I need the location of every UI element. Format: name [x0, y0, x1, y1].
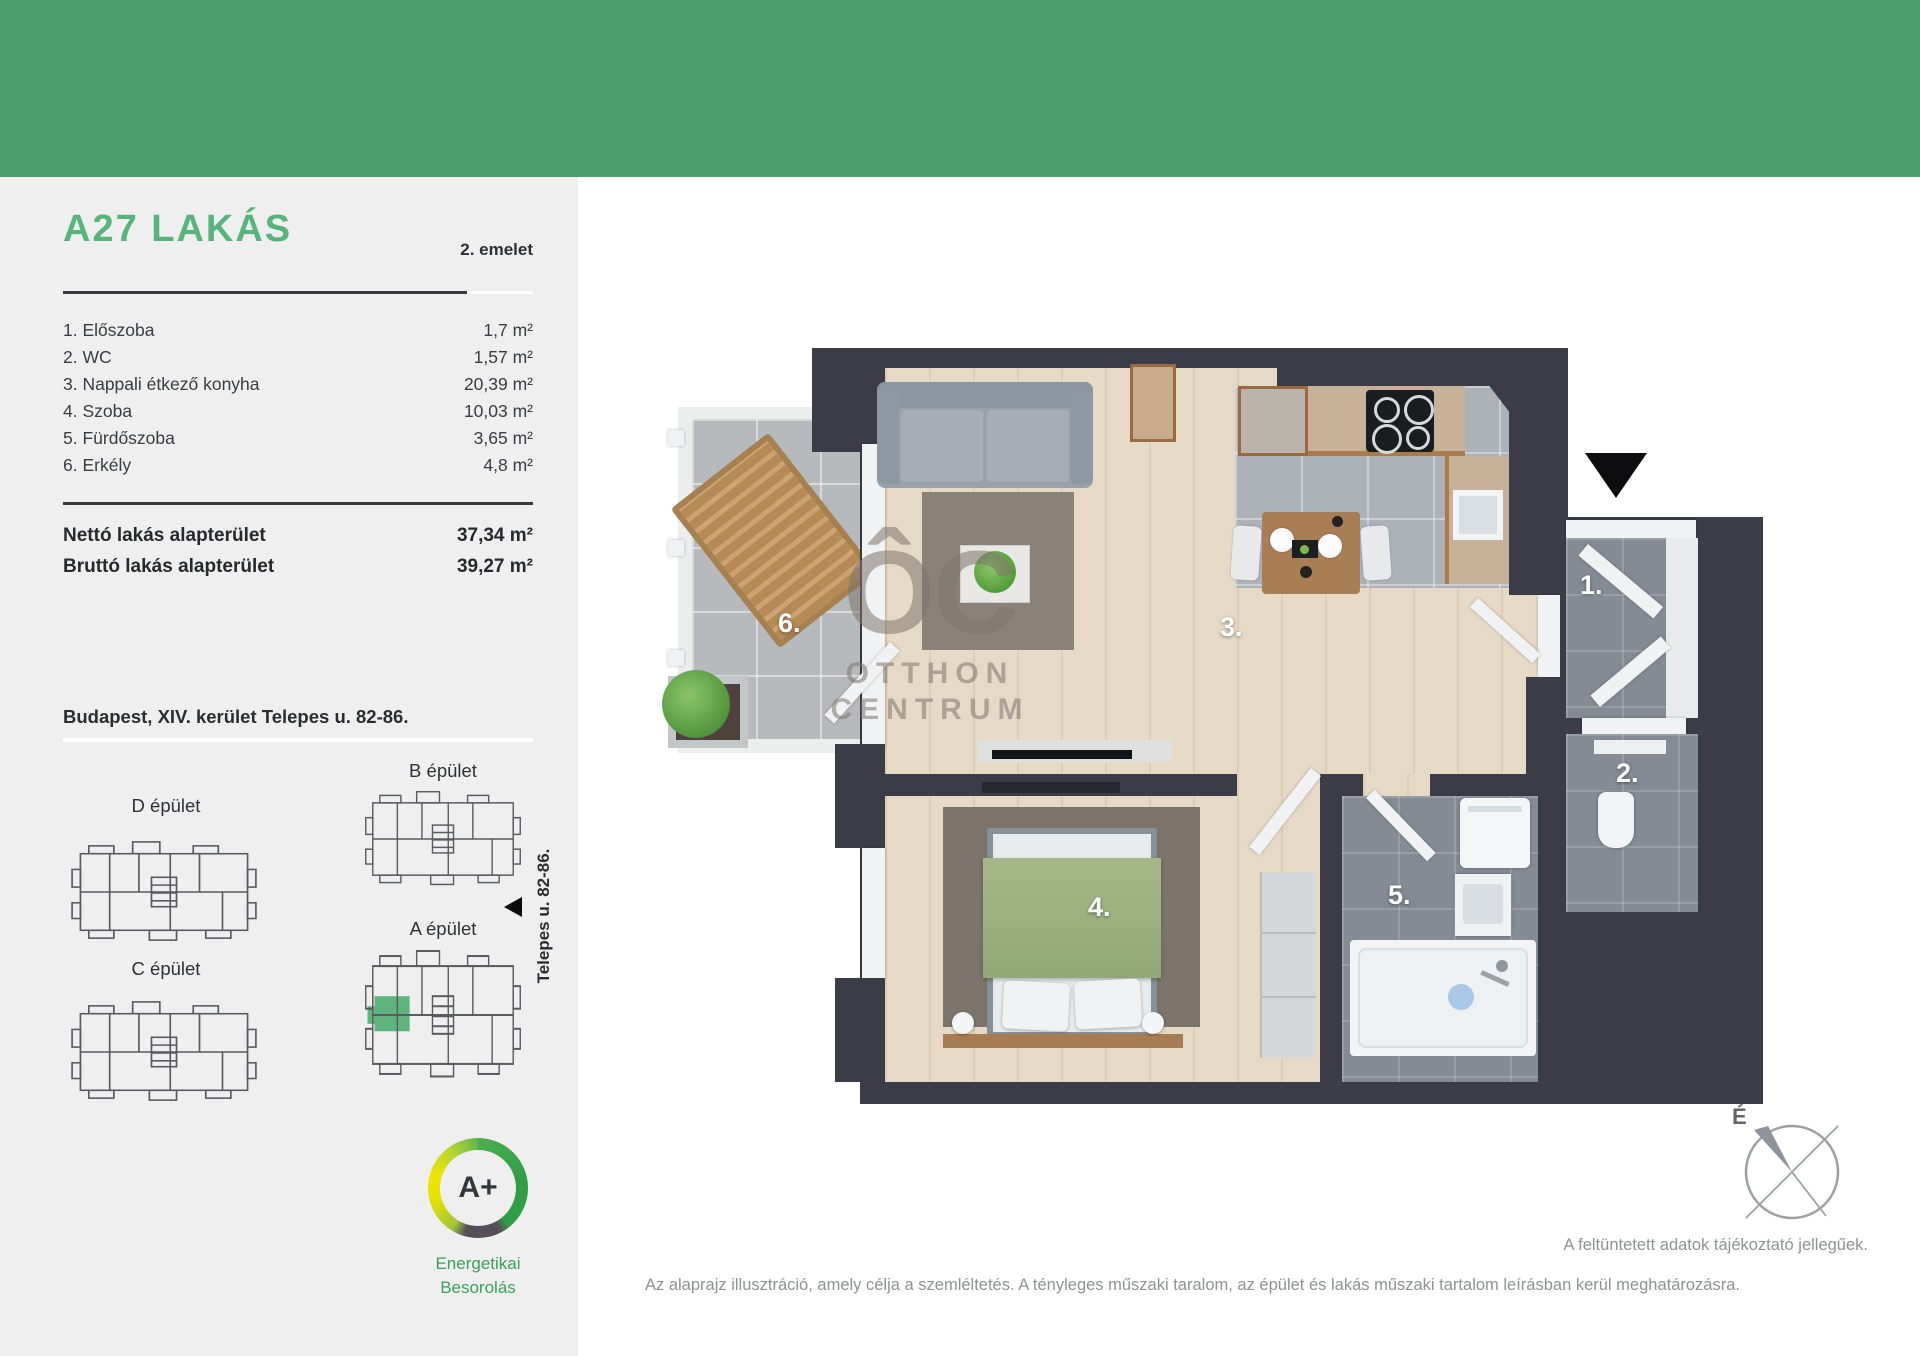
dining-chair [1360, 525, 1392, 581]
cup [1300, 566, 1312, 578]
table-plant [974, 551, 1016, 593]
serving-tray [1292, 540, 1318, 558]
room-number-wc: 2. [1616, 758, 1639, 789]
building-plan-a [364, 946, 522, 1084]
compass-needle [1754, 1126, 1792, 1172]
bed-blanket [983, 858, 1161, 978]
headboard-shelf [943, 1034, 1183, 1048]
room-label: 6. Erkély [63, 452, 131, 479]
compass-north-label: É [1732, 1104, 1747, 1129]
toilet [1598, 792, 1634, 848]
plant-bush [662, 670, 730, 738]
total-label: Nettó lakás alapterület [63, 520, 266, 551]
washing-machine [1460, 798, 1530, 868]
room-number-hall: 1. [1580, 570, 1603, 601]
disclaimer-long: Az alaprajz illusztráció, amely célja a … [645, 1276, 1885, 1295]
kitchen-fridge [1238, 386, 1308, 456]
sink-basin [1463, 884, 1503, 924]
sofa-cushion [901, 410, 983, 482]
compass: É [1722, 1096, 1858, 1232]
wc-threshold [1582, 718, 1686, 734]
room-area: 20,39 m² [464, 371, 533, 398]
wc-cistern [1594, 740, 1666, 754]
building-label-a: A épület [364, 918, 522, 940]
pillow [1074, 978, 1142, 1029]
sofa [877, 382, 1093, 488]
room-area: 3,65 m² [474, 425, 533, 452]
room-label: 3. Nappali étkező konyha [63, 371, 260, 398]
shower-head [1496, 960, 1508, 972]
total-label: Bruttó lakás alapterület [63, 551, 274, 582]
highlighted-unit [375, 996, 410, 1031]
floor-label: 2. emelet [300, 240, 533, 260]
cooktop [1366, 390, 1434, 452]
bedside-lamp [1142, 1012, 1164, 1034]
living-window [862, 444, 885, 750]
disclaimer-short: A feltüntetett adatok tájékoztató jelleg… [1268, 1236, 1868, 1255]
room-area: 10,03 m² [464, 398, 533, 425]
title-divider [63, 291, 467, 294]
room-list: 1. Előszoba 1,7 m² 2. WC 1,57 m² 3. Napp… [63, 317, 533, 479]
header-band [0, 0, 1920, 177]
address-divider [63, 738, 533, 742]
bathroom-sink [1455, 874, 1511, 936]
total-row: Nettó lakás alapterület 37,34 m² [63, 520, 533, 551]
kitchen-sink [1453, 490, 1503, 540]
sink-basin [1459, 496, 1497, 534]
room-area: 1,7 m² [483, 317, 533, 344]
burner [1404, 395, 1434, 425]
cup [1332, 516, 1343, 527]
washer-panel [1468, 806, 1522, 812]
burner [1406, 426, 1430, 450]
entrance-arrow [1585, 453, 1647, 498]
title-divider-accent [467, 291, 533, 294]
garnish [1300, 545, 1309, 554]
plate [1318, 534, 1342, 558]
pillow [1002, 980, 1070, 1031]
room-label: 5. Fürdőszoba [63, 425, 175, 452]
tub-drain [1448, 984, 1474, 1010]
wardrobe-line [1262, 932, 1316, 934]
wall-pier-midleft [835, 744, 885, 848]
entry-threshold [1566, 520, 1696, 538]
bedside-lamp [952, 1012, 974, 1034]
tv [992, 750, 1132, 759]
totals-divider [63, 502, 533, 505]
wardrobe-line [1262, 996, 1316, 998]
wall-pier-topleft [812, 348, 885, 452]
floorplan-sheet: A27 LAKÁS 2. emelet 1. Előszoba 1,7 m² 2… [0, 0, 1920, 1356]
street-direction-arrow [504, 897, 522, 917]
room-row: 6. Erkély 4,8 m² [63, 452, 533, 479]
room-number-balcony: 6. [778, 608, 801, 639]
bathtub [1350, 940, 1536, 1056]
balcony-post [668, 650, 684, 666]
tv-shelf [982, 782, 1120, 793]
room-number-bathroom: 5. [1388, 880, 1411, 911]
building-label-c: C épület [72, 958, 260, 980]
sofa-back [877, 382, 1093, 408]
energy-rating-label: Energetikai Besorolás [378, 1252, 578, 1300]
total-row: Bruttó lakás alapterület 39,27 m² [63, 551, 533, 582]
room-label: 1. Előszoba [63, 317, 154, 344]
kitchen-cabinet [1130, 364, 1176, 442]
building-plan-d [70, 838, 258, 946]
room-area: 4,8 m² [483, 452, 533, 479]
floorplan: 6. [660, 340, 1820, 1130]
building-label-b: B épület [364, 760, 522, 782]
address: Budapest, XIV. kerület Telepes u. 82-86. [63, 706, 543, 728]
sofa-arm [877, 390, 899, 484]
energy-rating-value: A+ [428, 1138, 528, 1238]
dining-chair [1230, 525, 1262, 581]
wardrobe [1260, 872, 1316, 1058]
total-value: 37,34 m² [457, 520, 533, 551]
sofa-arm [1071, 390, 1093, 484]
balcony-post [668, 430, 684, 446]
burner [1372, 424, 1402, 454]
room-label: 4. Szoba [63, 398, 132, 425]
burner [1374, 397, 1400, 423]
plate [1270, 528, 1294, 552]
room-row: 1. Előszoba 1,7 m² [63, 317, 533, 344]
total-value: 39,27 m² [457, 551, 533, 582]
building-label-d: D épület [72, 795, 260, 817]
street-label: Telepes u. 82-86. [534, 796, 564, 1036]
room-area: 1,57 m² [474, 344, 533, 371]
room-number-living: 3. [1220, 612, 1243, 643]
wall-bottom-right-mass [1560, 912, 1763, 1104]
dining-table [1262, 512, 1360, 594]
area-totals: Nettó lakás alapterület 37,34 m² Bruttó … [63, 520, 533, 582]
room-number-bedroom: 4. [1088, 892, 1111, 923]
energy-rating-badge: A+ [428, 1138, 528, 1238]
building-plan-c [70, 998, 258, 1106]
room-row: 3. Nappali étkező konyha 20,39 m² [63, 371, 533, 398]
room-row: 5. Fürdőszoba 3,65 m² [63, 425, 533, 452]
room-label: 2. WC [63, 344, 112, 371]
balcony-post [668, 540, 684, 556]
bedroom-window [862, 848, 885, 980]
entry-closet [1666, 538, 1698, 718]
bed [987, 828, 1157, 1038]
building-plan-b [364, 788, 522, 890]
wall-pier-bottomleft [835, 978, 885, 1082]
room-row: 4. Szoba 10,03 m² [63, 398, 533, 425]
room-row: 2. WC 1,57 m² [63, 344, 533, 371]
sofa-cushion [987, 410, 1069, 482]
page-title: A27 LAKÁS [63, 208, 292, 251]
